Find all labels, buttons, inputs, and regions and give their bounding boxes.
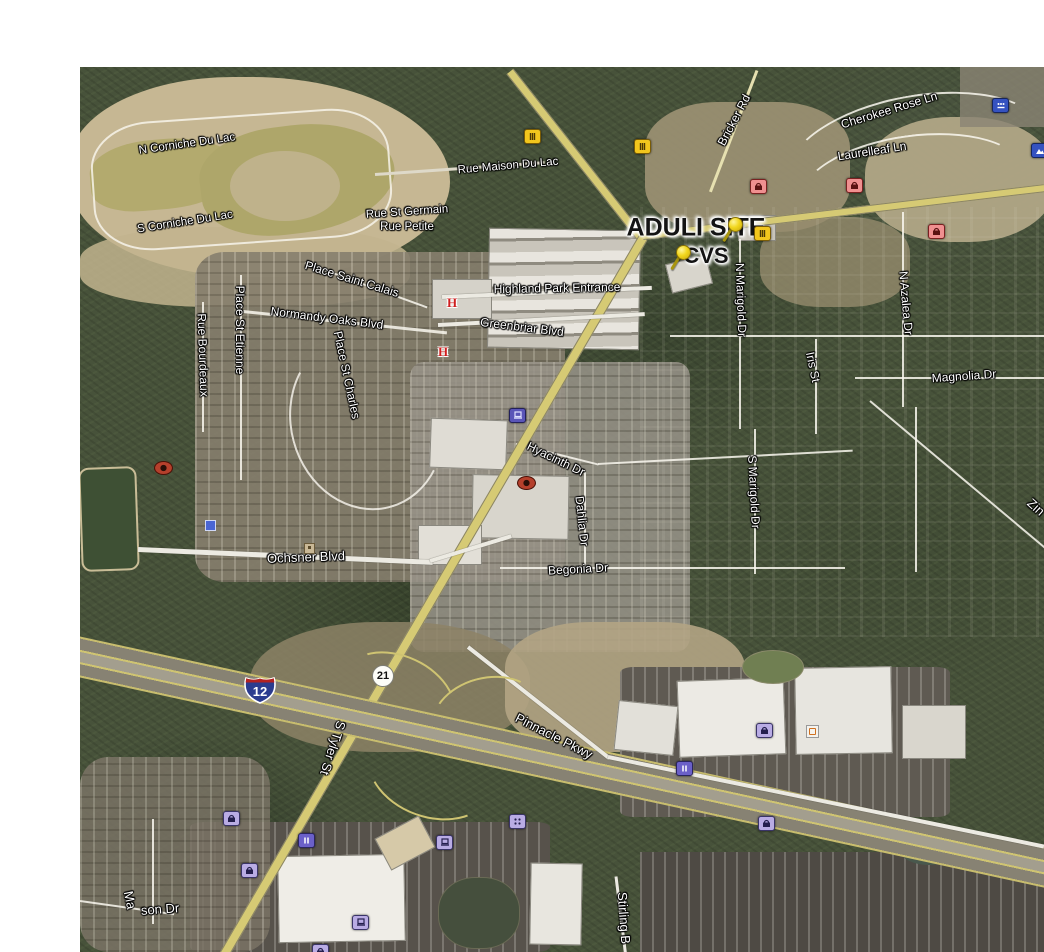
- road-label: Rue Bourdeaux: [195, 313, 212, 397]
- bank-icon[interactable]: [992, 98, 1009, 113]
- building-medical: [432, 279, 492, 319]
- pond-pinnacle: [742, 650, 804, 684]
- road-label: Rue Petite: [380, 221, 434, 233]
- marker-square-tan[interactable]: [304, 543, 315, 554]
- pushpin-icon-cvs[interactable]: [669, 245, 691, 275]
- building-bigbox: [277, 854, 405, 943]
- shopping-bag-icon-lavender[interactable]: [312, 944, 329, 952]
- computer-icon[interactable]: [436, 835, 453, 850]
- gas-pump-icon[interactable]: [298, 833, 315, 848]
- shopping-bag-icon-lavender[interactable]: [756, 723, 773, 738]
- road-label: Stirling B: [615, 892, 634, 945]
- pushpin-head: [676, 245, 691, 260]
- road-cross-east: [670, 335, 1044, 337]
- route-21-shield: 21: [372, 665, 394, 687]
- restaurant-icon[interactable]: [754, 226, 771, 241]
- road-corniche-loop: [88, 105, 395, 255]
- marker-square-white[interactable]: [806, 725, 819, 738]
- computer-icon[interactable]: [352, 915, 369, 930]
- pond-bottom: [438, 877, 520, 949]
- hospital-icon[interactable]: H: [447, 295, 457, 311]
- storefront-dots-icon[interactable]: [509, 814, 526, 829]
- webcam-icon[interactable]: [154, 461, 173, 475]
- pushpin-icon-aduli-site[interactable]: [721, 217, 743, 247]
- marker-square-blue[interactable]: [205, 520, 216, 531]
- building: [529, 863, 582, 946]
- shopping-bag-icon-lavender[interactable]: [758, 816, 775, 831]
- page: 12 21 H H ADULI SITE CVS N Corniche Du L…: [0, 0, 1044, 952]
- shopping-bag-icon-lavender[interactable]: [223, 811, 240, 826]
- site-label-aduli: ADULI SITE: [627, 214, 766, 243]
- pond-left-edge: [80, 466, 140, 572]
- road-label: N Marigold Dr: [733, 263, 750, 337]
- restaurant-icon[interactable]: [634, 139, 651, 154]
- road-label: Rue Maison Du Lac: [457, 156, 559, 177]
- pushpin-head: [728, 217, 743, 232]
- map-canvas[interactable]: 12 21 H H ADULI SITE CVS N Corniche Du L…: [80, 67, 1044, 952]
- interstate-number: 12: [253, 684, 267, 699]
- road-label: son Dr: [140, 900, 179, 918]
- shopping-bag-icon-lavender[interactable]: [241, 863, 258, 878]
- photo-icon[interactable]: [1031, 143, 1044, 158]
- building: [614, 700, 679, 756]
- shopping-bag-icon-pink[interactable]: [928, 224, 945, 239]
- road-label: Place St Etienne: [233, 286, 247, 375]
- gas-pump-icon[interactable]: [676, 761, 693, 776]
- computer-icon[interactable]: [509, 408, 526, 423]
- building-bigbox: [794, 666, 893, 755]
- shopping-bag-icon-pink[interactable]: [846, 178, 863, 193]
- restaurant-icon[interactable]: [524, 129, 541, 144]
- road-label: Highland Park Entrance: [494, 280, 621, 296]
- webcam-icon[interactable]: [517, 476, 536, 490]
- building: [902, 705, 966, 759]
- hospital-icon[interactable]: H: [438, 344, 448, 360]
- road-s-azalea: [915, 407, 917, 572]
- interstate-12-shield: 12: [243, 674, 277, 709]
- road-hwy21-north: [506, 69, 646, 244]
- shopping-bag-icon-pink[interactable]: [750, 179, 767, 194]
- building-bigbox: [677, 677, 787, 758]
- route-number: 21: [377, 670, 389, 682]
